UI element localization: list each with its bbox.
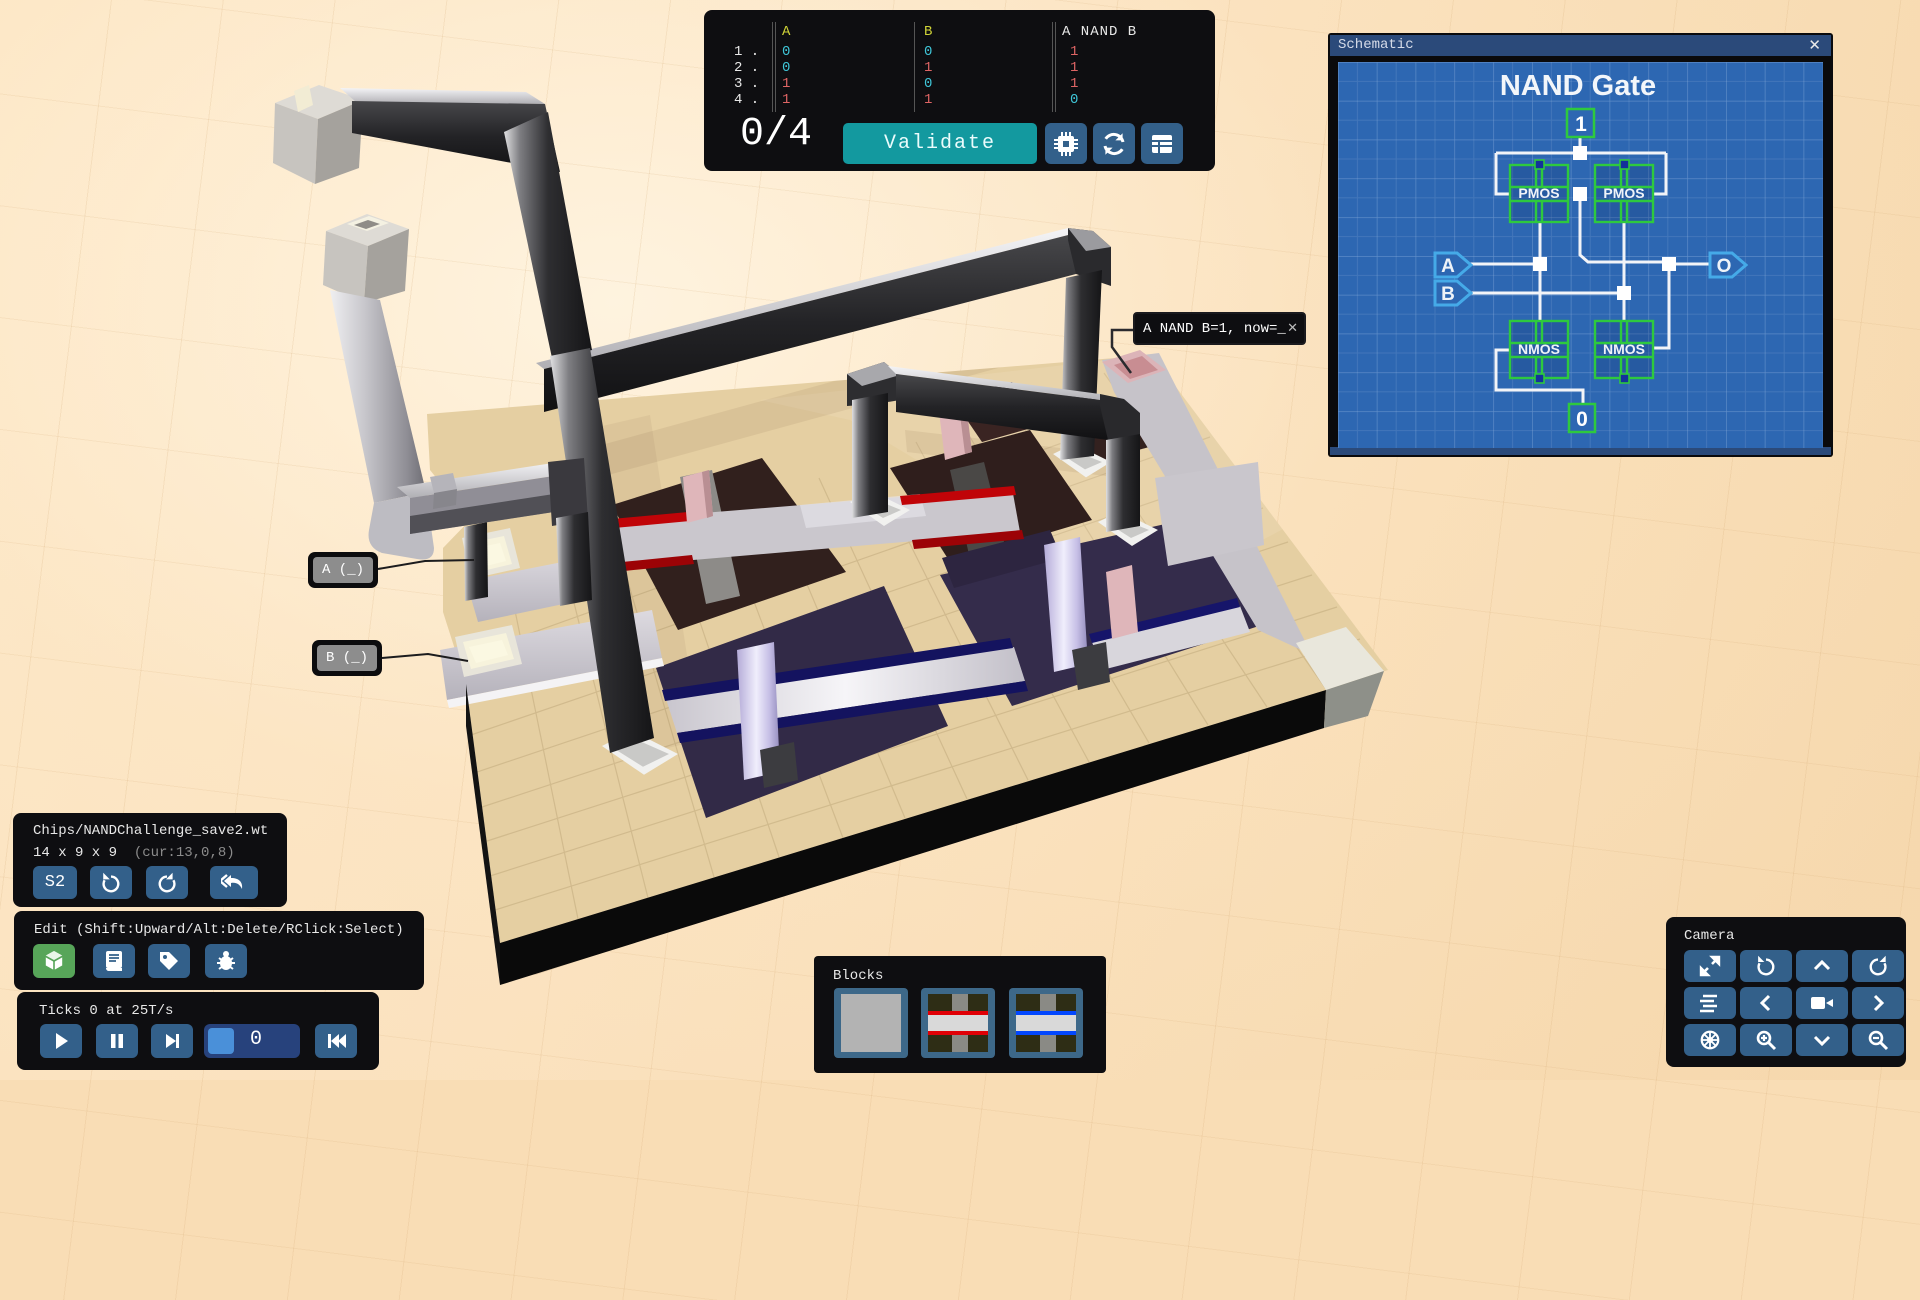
svg-text:NMOS: NMOS bbox=[1603, 341, 1645, 357]
svg-text:O: O bbox=[1717, 256, 1732, 277]
svg-text:PMOS: PMOS bbox=[1518, 185, 1559, 201]
svg-text:PMOS: PMOS bbox=[1603, 185, 1644, 201]
svg-text:0: 0 bbox=[1576, 408, 1588, 431]
svg-text:1: 1 bbox=[1575, 113, 1587, 136]
svg-text:NMOS: NMOS bbox=[1518, 341, 1560, 357]
svg-text:A: A bbox=[1441, 256, 1455, 277]
svg-text:NAND Gate: NAND Gate bbox=[1500, 70, 1656, 102]
svg-text:B: B bbox=[1441, 284, 1455, 305]
